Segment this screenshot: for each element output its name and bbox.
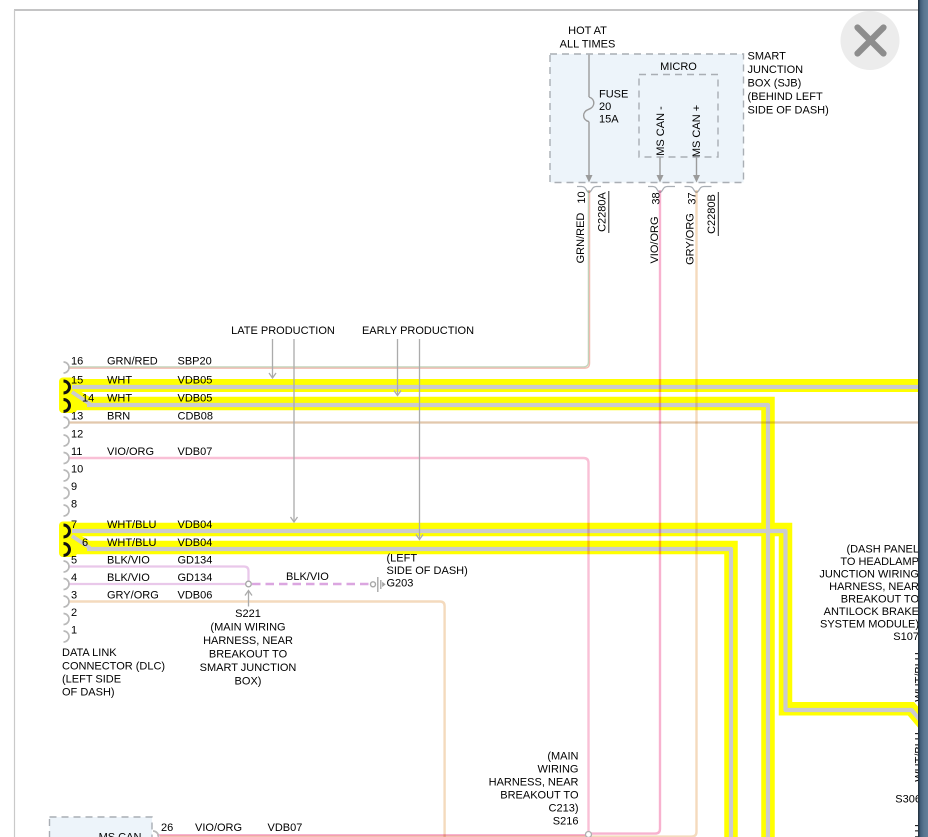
svg-text:BRN: BRN <box>107 411 130 423</box>
svg-text:VDB05: VDB05 <box>178 375 213 387</box>
svg-text:BREAKOUT TO: BREAKOUT TO <box>841 594 920 606</box>
svg-text:10: 10 <box>71 464 83 476</box>
svg-text:8: 8 <box>71 499 77 511</box>
svg-text:SIDE OF DASH): SIDE OF DASH) <box>748 105 829 117</box>
svg-text:20: 20 <box>599 101 611 113</box>
svg-text:ALL TIMES: ALL TIMES <box>560 39 616 51</box>
svg-text:SMART JUNCTION: SMART JUNCTION <box>200 662 297 674</box>
svg-text:S306: S306 <box>895 793 921 805</box>
svg-text:GD134: GD134 <box>178 572 213 584</box>
svg-text:GRY/ORG: GRY/ORG <box>685 213 697 265</box>
svg-text:2: 2 <box>71 607 77 619</box>
svg-text:5: 5 <box>71 555 77 567</box>
svg-text:HARNESS, NEAR: HARNESS, NEAR <box>829 581 919 593</box>
svg-text:VDB05: VDB05 <box>178 393 213 405</box>
svg-text:(MAIN WIRING: (MAIN WIRING <box>210 622 285 634</box>
svg-text:VDB06: VDB06 <box>178 590 213 602</box>
svg-text:GD134: GD134 <box>178 555 213 567</box>
svg-text:JUNCTION WIRING: JUNCTION WIRING <box>819 569 919 581</box>
svg-text:GRN/RED: GRN/RED <box>575 213 587 264</box>
svg-text:WHT: WHT <box>107 393 132 405</box>
svg-text:10: 10 <box>576 191 588 203</box>
svg-text:BLK/VIO: BLK/VIO <box>107 555 150 567</box>
svg-text:BLK/VIO: BLK/VIO <box>286 571 329 583</box>
svg-text:HARNESS, NEAR: HARNESS, NEAR <box>489 777 579 789</box>
svg-text:4: 4 <box>71 572 77 584</box>
svg-text:(BEHIND LEFT: (BEHIND LEFT <box>748 91 823 103</box>
svg-text:VDB07: VDB07 <box>268 822 303 834</box>
svg-text:(MAIN: (MAIN <box>547 751 578 763</box>
svg-text:MS CAN -: MS CAN - <box>655 106 667 156</box>
svg-text:LATE PRODUCTION: LATE PRODUCTION <box>231 325 335 337</box>
svg-text:C213): C213) <box>549 803 579 815</box>
svg-text:SIDE OF DASH): SIDE OF DASH) <box>387 565 468 577</box>
svg-text:(LEFT SIDE: (LEFT SIDE <box>62 674 121 686</box>
svg-text:CONNECTOR (DLC): CONNECTOR (DLC) <box>62 660 165 672</box>
svg-text:SMART: SMART <box>748 51 787 63</box>
svg-text:(DASH PANEL: (DASH PANEL <box>846 544 919 556</box>
svg-text:DATA LINK: DATA LINK <box>62 647 117 659</box>
svg-text:12: 12 <box>71 429 83 441</box>
svg-text:SYSTEM MODULE): SYSTEM MODULE) <box>820 619 919 631</box>
svg-text:S107: S107 <box>893 631 919 643</box>
svg-text:6: 6 <box>82 537 88 549</box>
svg-text:GRY/ORG: GRY/ORG <box>107 590 159 602</box>
svg-text:MS CAN +: MS CAN + <box>691 105 703 157</box>
svg-text:C2280A: C2280A <box>597 191 609 231</box>
svg-text:VIO/ORG: VIO/ORG <box>195 822 242 834</box>
svg-text:7: 7 <box>71 519 77 531</box>
svg-text:16: 16 <box>71 356 83 368</box>
svg-text:VDB04: VDB04 <box>178 537 213 549</box>
svg-text:9: 9 <box>71 481 77 493</box>
svg-text:FUSE: FUSE <box>599 89 628 101</box>
svg-text:EARLY PRODUCTION: EARLY PRODUCTION <box>362 325 474 337</box>
svg-text:13: 13 <box>71 411 83 423</box>
svg-text:BOX): BOX) <box>235 676 262 688</box>
svg-text:ANTILOCK BRAKE: ANTILOCK BRAKE <box>824 606 919 618</box>
svg-text:HARNESS, NEAR: HARNESS, NEAR <box>203 635 293 647</box>
svg-text:14: 14 <box>82 393 94 405</box>
svg-text:OF DASH): OF DASH) <box>62 687 115 699</box>
svg-text:WHT: WHT <box>107 375 132 387</box>
svg-text:WHT/BLU: WHT/BLU <box>107 537 157 549</box>
svg-text:S221: S221 <box>235 608 261 620</box>
svg-text:BREAKOUT TO: BREAKOUT TO <box>209 649 288 661</box>
svg-text:GRN/RED: GRN/RED <box>107 356 158 368</box>
svg-text:VDB04: VDB04 <box>178 519 213 531</box>
svg-text:BREAKOUT TO: BREAKOUT TO <box>500 790 579 802</box>
svg-text:15A: 15A <box>599 114 619 126</box>
svg-text:TO HEADLAMP: TO HEADLAMP <box>840 556 919 568</box>
svg-text:JUNCTION: JUNCTION <box>748 64 804 76</box>
svg-text:CDB08: CDB08 <box>178 411 213 423</box>
svg-text:(LEFT: (LEFT <box>387 553 418 565</box>
svg-text:G203: G203 <box>387 578 414 590</box>
svg-text:WHT/BLU: WHT/BLU <box>107 519 157 531</box>
svg-text:3: 3 <box>71 590 77 602</box>
svg-text:MICRO: MICRO <box>660 61 697 73</box>
svg-text:11: 11 <box>71 446 82 458</box>
svg-text:VDB07: VDB07 <box>178 446 213 458</box>
svg-text:HOT AT: HOT AT <box>568 25 607 37</box>
svg-text:26: 26 <box>161 822 173 834</box>
svg-text:MS CAN: MS CAN <box>99 832 142 837</box>
svg-text:WIRING: WIRING <box>538 764 579 776</box>
svg-text:BOX (SJB): BOX (SJB) <box>748 78 802 90</box>
svg-text:SBP20: SBP20 <box>178 356 212 368</box>
svg-text:S216: S216 <box>553 816 579 828</box>
svg-text:C2280B: C2280B <box>706 194 718 234</box>
svg-text:VIO/ORG: VIO/ORG <box>107 446 154 458</box>
svg-text:1: 1 <box>71 625 77 637</box>
svg-text:15: 15 <box>71 375 83 387</box>
svg-text:BLK/VIO: BLK/VIO <box>107 572 150 584</box>
